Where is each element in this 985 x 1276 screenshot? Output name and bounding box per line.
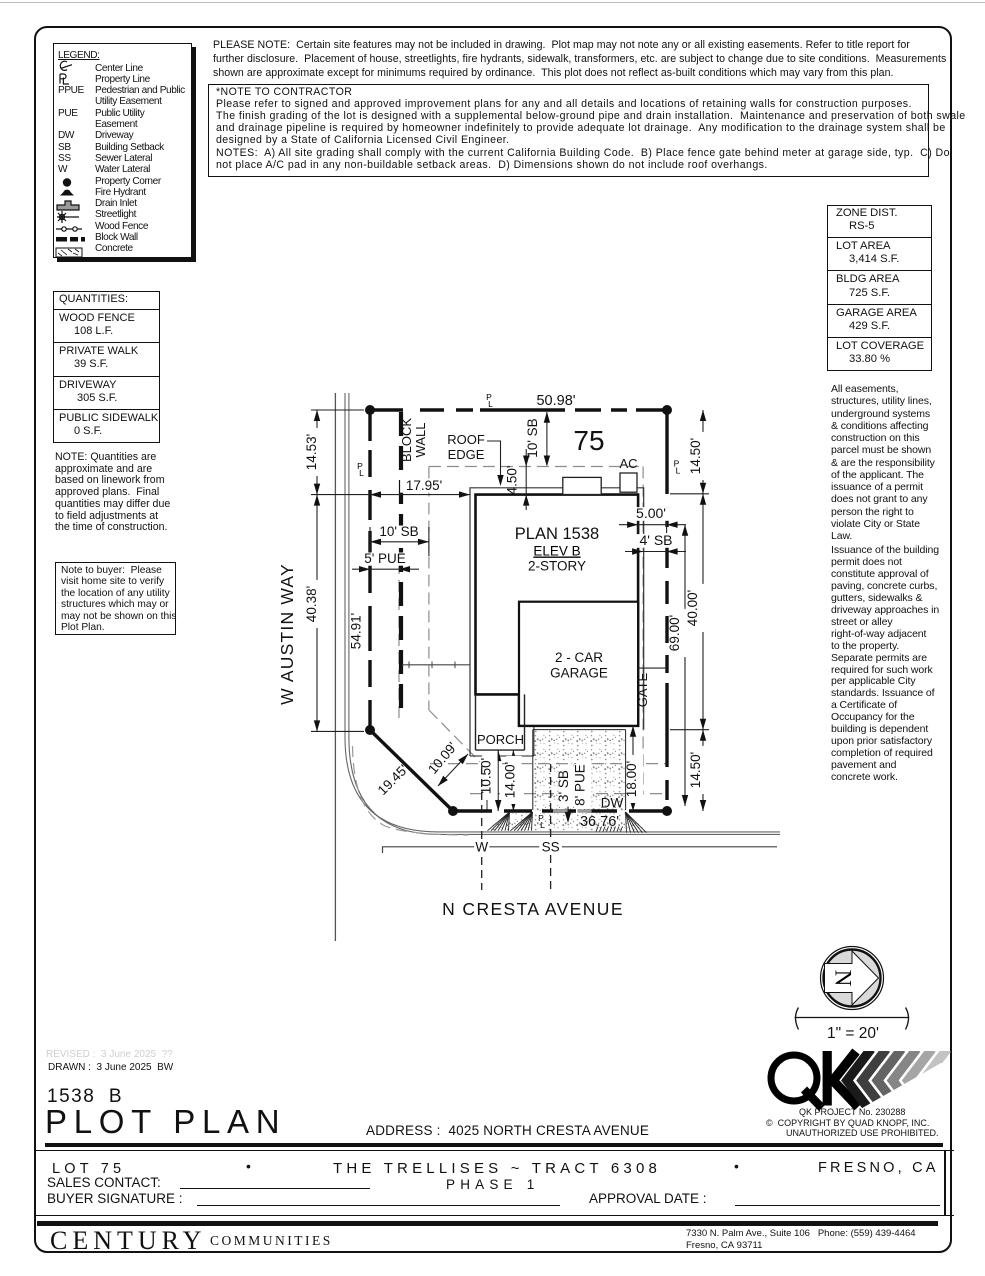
svg-text:10' SB: 10' SB xyxy=(525,418,540,457)
svg-text:36.76': 36.76' xyxy=(580,814,619,830)
svg-text:PLAN 1538: PLAN 1538 xyxy=(515,525,599,543)
svg-text:L: L xyxy=(540,820,545,830)
svg-text:8' PUE: 8' PUE xyxy=(573,764,588,806)
svg-text:5.00': 5.00' xyxy=(636,505,666,521)
svg-text:18.00': 18.00' xyxy=(624,761,639,797)
svg-text:EDGE: EDGE xyxy=(448,447,485,462)
svg-text:10' SB: 10' SB xyxy=(379,524,418,539)
svg-text:ROOF: ROOF xyxy=(447,432,485,447)
svg-text:14.50': 14.50' xyxy=(688,752,703,788)
svg-text:17.95': 17.95' xyxy=(406,478,442,493)
svg-text:WALL: WALL xyxy=(413,423,428,458)
svg-text:ELEV B: ELEV B xyxy=(533,544,580,559)
svg-text:GATE: GATE xyxy=(635,672,650,707)
svg-text:14.00': 14.00' xyxy=(503,762,518,798)
svg-text:40.38': 40.38' xyxy=(304,586,319,622)
svg-text:1" = 20': 1" = 20' xyxy=(827,1025,879,1042)
svg-text:14.53': 14.53' xyxy=(304,434,319,470)
svg-text:10.09': 10.09' xyxy=(425,739,460,777)
svg-text:L: L xyxy=(488,399,493,409)
svg-text:PORCH: PORCH xyxy=(477,732,524,747)
svg-text:19.45': 19.45' xyxy=(375,762,411,798)
svg-text:N: N xyxy=(831,970,856,987)
svg-text:N CRESTA AVENUE: N CRESTA AVENUE xyxy=(442,899,624,919)
svg-text:75: 75 xyxy=(573,425,604,456)
svg-text:L: L xyxy=(359,468,364,478)
svg-text:40.00': 40.00' xyxy=(685,590,700,626)
svg-text:5' PUE: 5' PUE xyxy=(364,551,406,566)
svg-text:L: L xyxy=(676,465,681,475)
svg-text:69.00': 69.00' xyxy=(667,615,682,651)
svg-text:AC: AC xyxy=(619,456,637,471)
svg-text:BLOCK: BLOCK xyxy=(399,418,414,462)
svg-text:54.91': 54.91' xyxy=(349,613,364,649)
svg-text:4' SB: 4' SB xyxy=(639,532,672,548)
svg-text:14.50': 14.50' xyxy=(688,438,703,474)
svg-text:50.98': 50.98' xyxy=(536,393,575,409)
svg-text:10.50': 10.50' xyxy=(479,758,494,794)
svg-text:4.50': 4.50' xyxy=(505,466,520,495)
svg-text:DW: DW xyxy=(601,796,624,811)
svg-text:3' SB: 3' SB xyxy=(556,770,571,802)
svg-text:W AUSTIN WAY: W AUSTIN WAY xyxy=(277,563,297,705)
svg-text:GARAGE: GARAGE xyxy=(550,666,608,681)
svg-text:SS: SS xyxy=(542,840,560,855)
svg-text:2 - CAR: 2 - CAR xyxy=(555,650,603,665)
svg-text:W: W xyxy=(475,840,488,855)
svg-text:2-STORY: 2-STORY xyxy=(528,559,586,574)
